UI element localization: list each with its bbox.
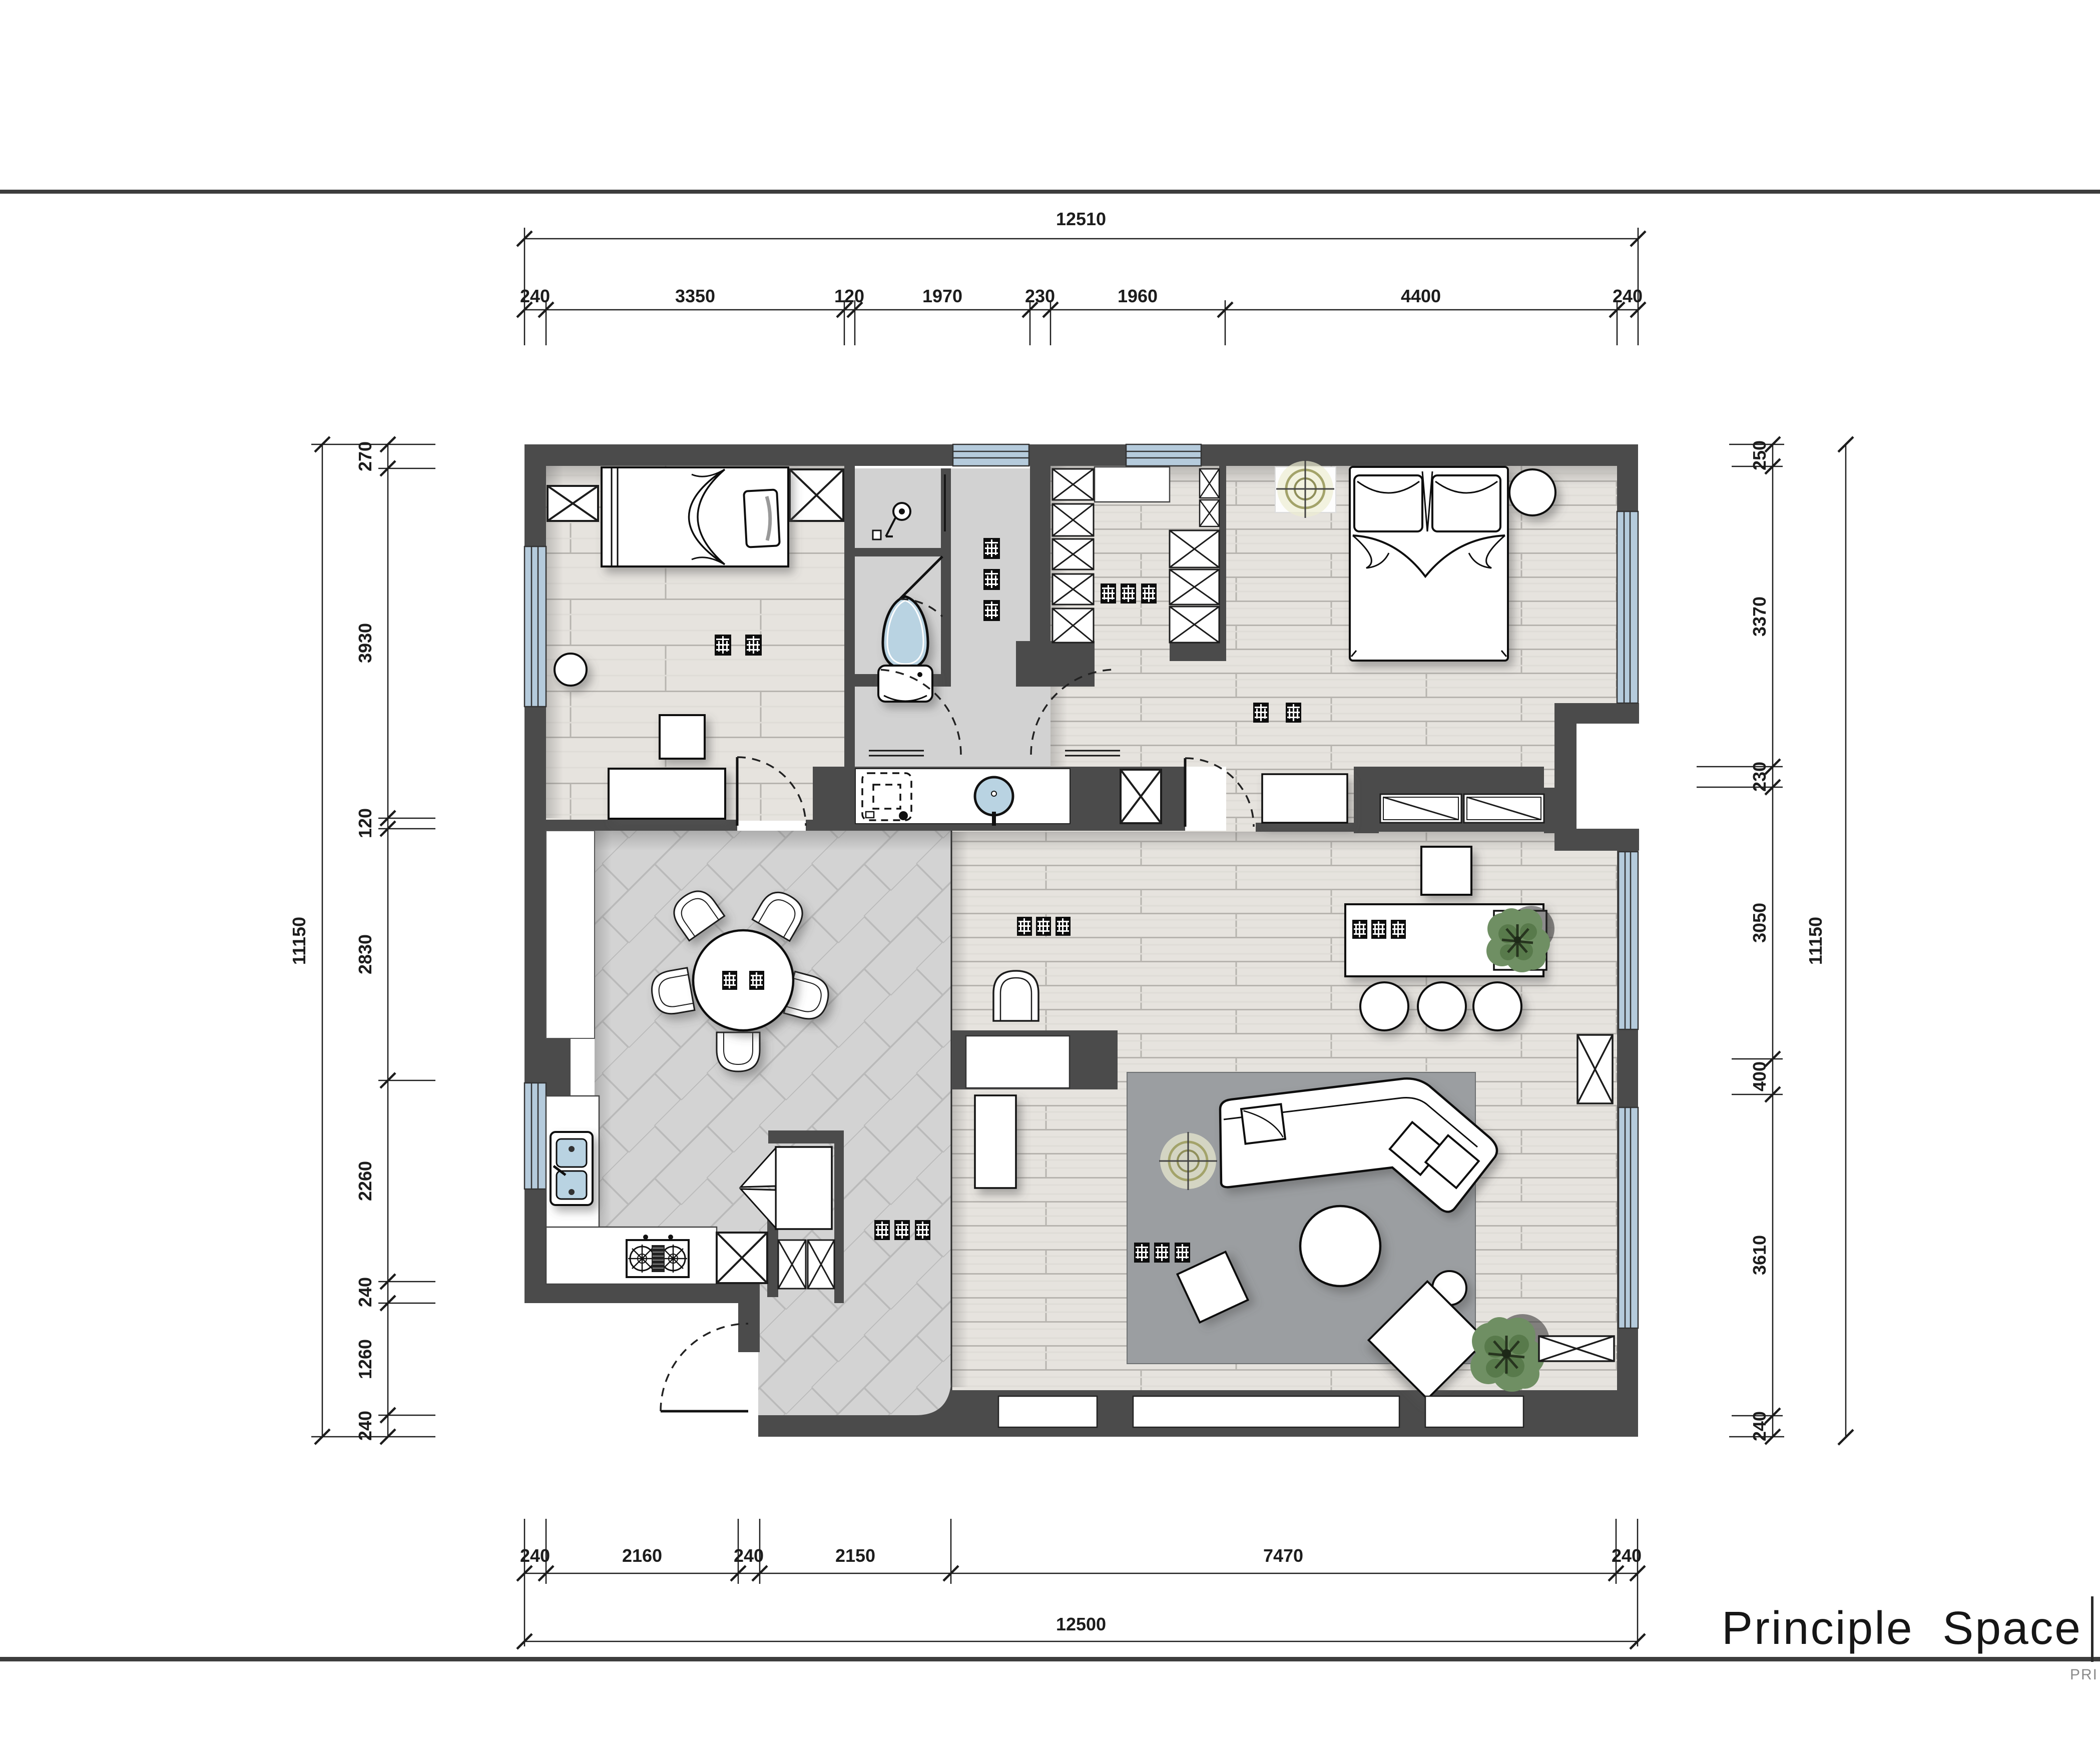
svg-text:1260: 1260 [355,1339,375,1379]
svg-text:3050: 3050 [1749,903,1770,943]
svg-text:PRI: PRI [2070,1666,2098,1683]
svg-text:2260: 2260 [355,1161,375,1201]
svg-text:120: 120 [834,286,864,306]
svg-text:240: 240 [520,1545,550,1566]
svg-text:240: 240 [355,1277,375,1307]
svg-text:3370: 3370 [1749,597,1770,637]
svg-text:2150: 2150 [835,1545,875,1566]
svg-text:1970: 1970 [922,286,962,306]
svg-text:400: 400 [1749,1061,1770,1091]
svg-text:230: 230 [1025,286,1055,306]
svg-text:240: 240 [1613,286,1643,306]
svg-text:12510: 12510 [1056,209,1106,229]
svg-text:11150: 11150 [289,917,309,965]
svg-text:4400: 4400 [1401,286,1441,306]
svg-text:3930: 3930 [355,623,375,663]
svg-text:11150: 11150 [1805,917,1826,965]
svg-text:3610: 3610 [1749,1235,1770,1275]
svg-text:250: 250 [1749,440,1770,470]
svg-text:3350: 3350 [675,286,715,306]
svg-text:240: 240 [355,1411,375,1441]
svg-text:240: 240 [1612,1545,1642,1566]
svg-text:7470: 7470 [1263,1545,1303,1566]
svg-text:120: 120 [355,808,375,838]
svg-text:270: 270 [355,441,375,471]
svg-text:12500: 12500 [1056,1614,1106,1634]
svg-text:Principle Space: Principle Space [1722,1602,2082,1654]
svg-text:230: 230 [1749,762,1770,792]
svg-text:240: 240 [520,286,550,306]
svg-text:240: 240 [734,1545,764,1566]
svg-text:2830: 2830 [355,934,375,974]
svg-text:1960: 1960 [1118,286,1158,306]
svg-text:2160: 2160 [622,1545,662,1566]
svg-text:240: 240 [1749,1411,1770,1441]
